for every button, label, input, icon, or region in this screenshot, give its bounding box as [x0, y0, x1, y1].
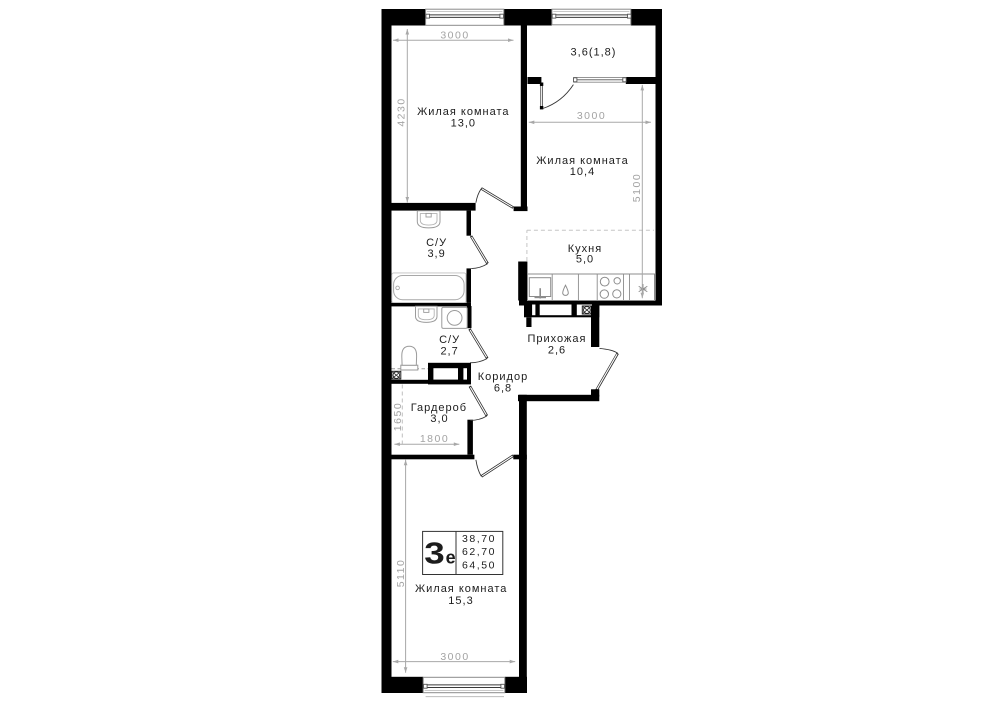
svg-text:3000: 3000	[440, 30, 469, 42]
svg-text:С/У: С/У	[439, 334, 460, 346]
svg-text:10,4: 10,4	[570, 166, 595, 178]
svg-text:Жилая комната: Жилая комната	[417, 106, 509, 118]
svg-text:5100: 5100	[631, 173, 643, 202]
svg-text:3,6(1,8): 3,6(1,8)	[571, 46, 617, 58]
svg-text:2,6: 2,6	[548, 344, 566, 356]
svg-text:13,0: 13,0	[451, 117, 476, 129]
svg-text:Прихожая: Прихожая	[528, 333, 587, 345]
svg-text:6,8: 6,8	[494, 383, 512, 395]
svg-text:3,9: 3,9	[427, 248, 445, 260]
svg-text:15,3: 15,3	[448, 595, 473, 607]
svg-text:3000: 3000	[440, 651, 469, 663]
svg-text:3: 3	[424, 536, 445, 570]
svg-text:64,50: 64,50	[462, 560, 496, 572]
svg-text:3000: 3000	[577, 110, 606, 122]
svg-text:62,70: 62,70	[462, 546, 496, 558]
svg-text:С/У: С/У	[426, 237, 447, 249]
svg-text:4230: 4230	[395, 97, 407, 126]
svg-text:2,7: 2,7	[440, 346, 458, 358]
svg-text:5,0: 5,0	[576, 254, 594, 266]
svg-text:3,0: 3,0	[430, 413, 448, 425]
svg-text:38,70: 38,70	[462, 533, 496, 545]
svg-text:1650: 1650	[392, 402, 404, 431]
svg-text:е: е	[446, 547, 456, 567]
svg-text:5110: 5110	[395, 559, 407, 588]
svg-text:Коридор: Коридор	[478, 371, 528, 383]
svg-text:Жилая комната: Жилая комната	[415, 583, 507, 595]
svg-text:1800: 1800	[420, 433, 449, 445]
